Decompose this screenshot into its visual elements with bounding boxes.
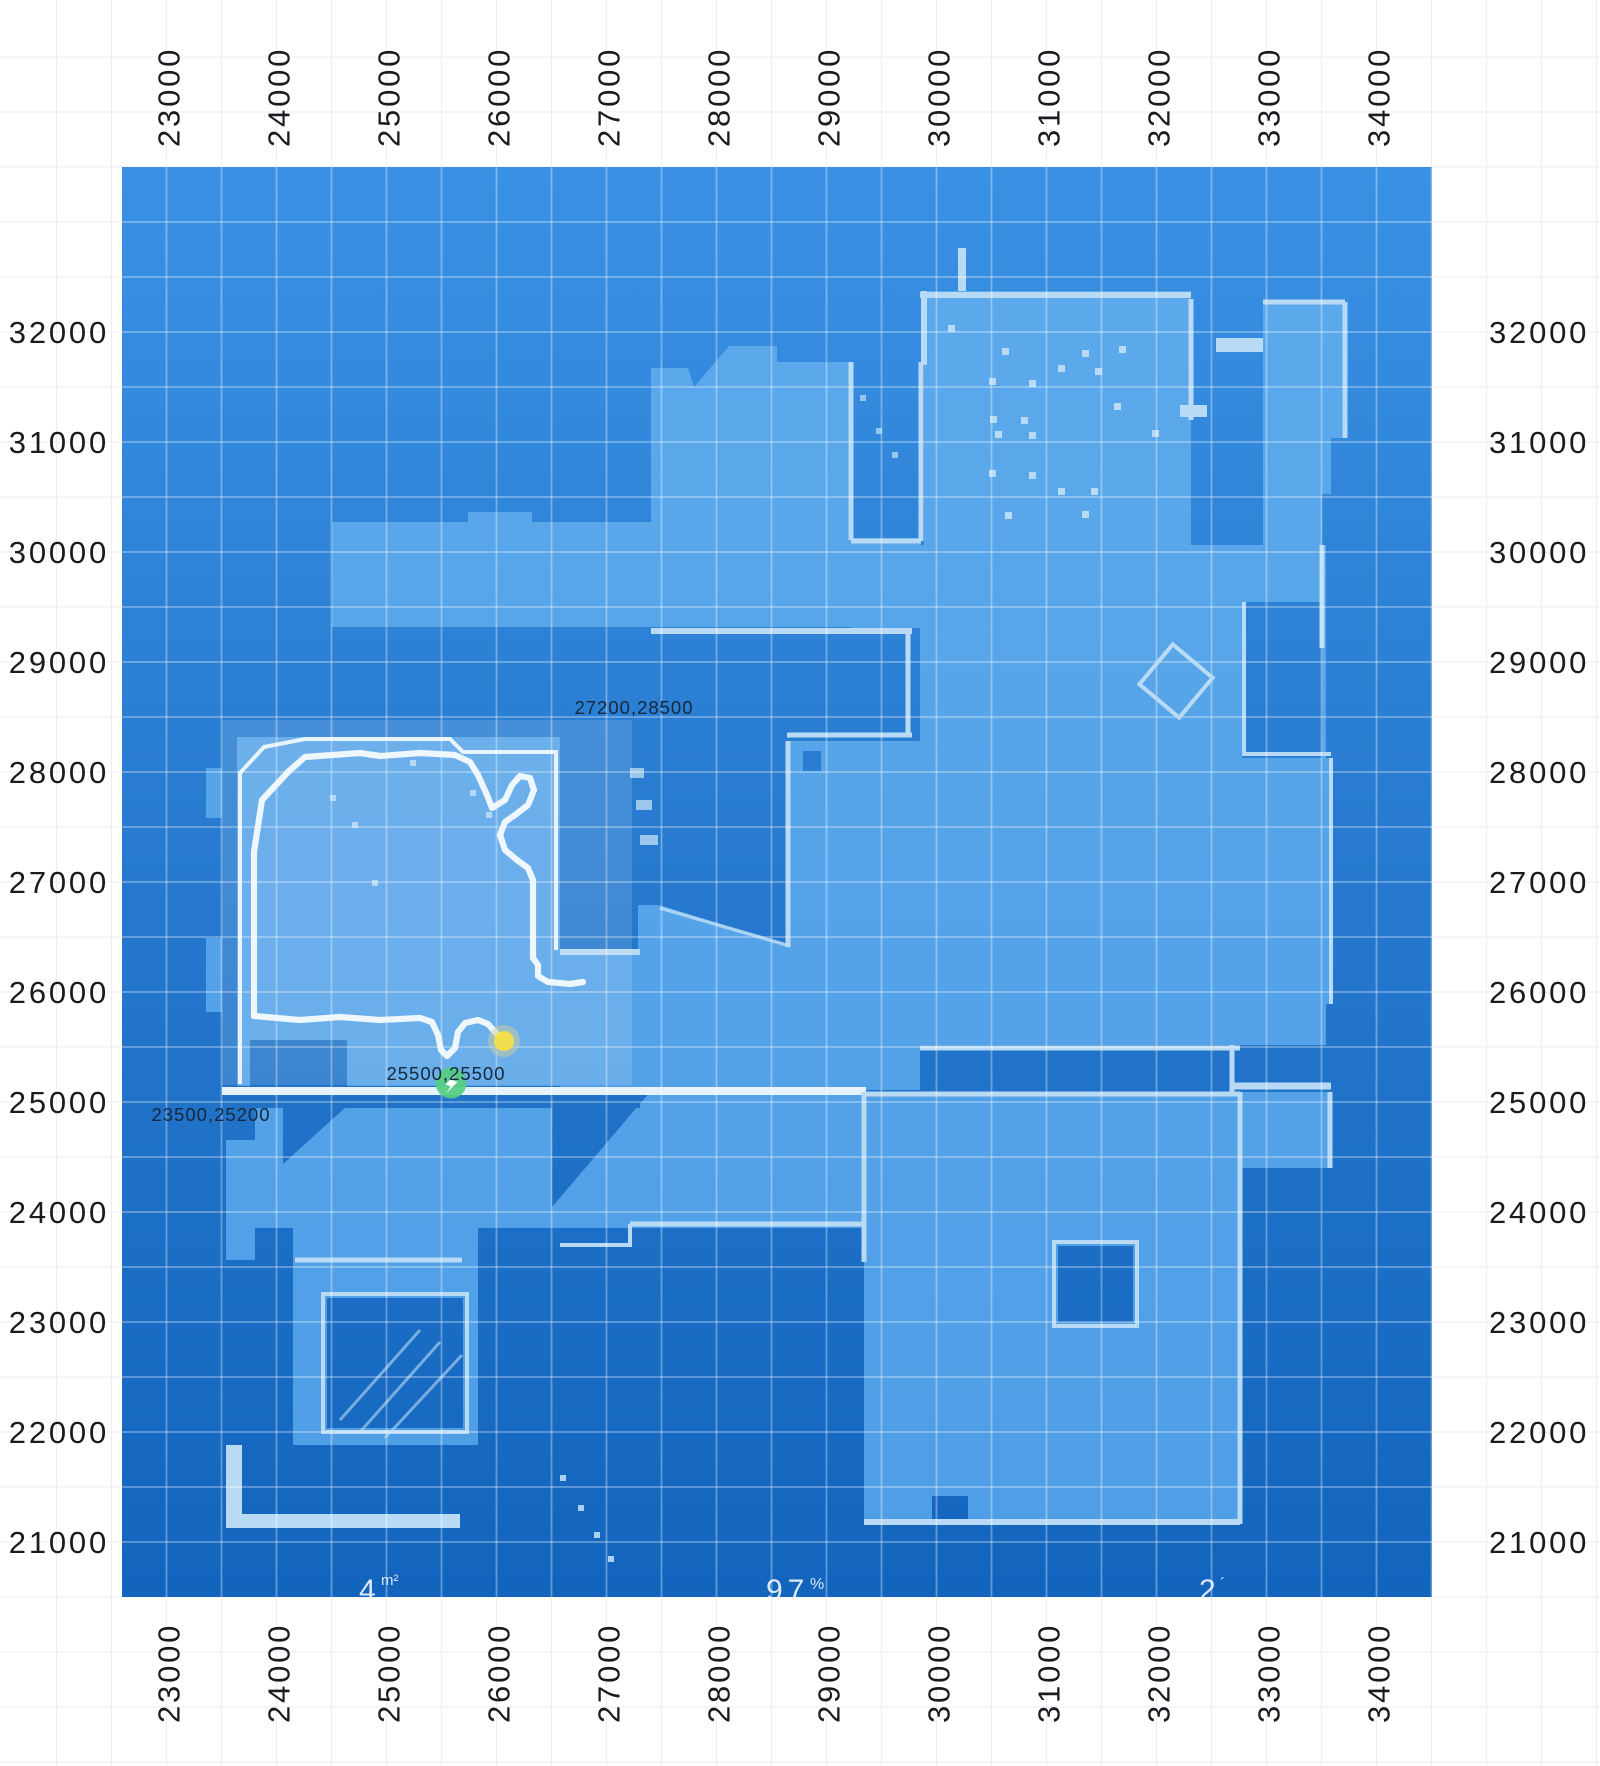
svg-text:22000: 22000 [1489,1415,1589,1450]
svg-text:29000: 29000 [812,47,847,147]
svg-text:34000: 34000 [1362,1623,1397,1723]
svg-text:25000: 25000 [1489,1085,1589,1120]
svg-text:31000: 31000 [1032,1623,1067,1723]
svg-text:23500,25200: 23500,25200 [151,1104,270,1125]
svg-text:31000: 31000 [1032,47,1067,147]
svg-text:28000: 28000 [702,47,737,147]
svg-text:26000: 26000 [482,47,517,147]
svg-text:26000: 26000 [1489,975,1589,1010]
svg-text:27000: 27000 [9,865,109,900]
svg-text:24000: 24000 [9,1195,109,1230]
svg-text:29000: 29000 [9,645,109,680]
svg-text:32000: 32000 [9,315,109,350]
svg-text:32000: 32000 [1142,1623,1177,1723]
svg-text:23000: 23000 [9,1305,109,1340]
svg-text:29000: 29000 [1489,645,1589,680]
svg-text:30000: 30000 [1489,535,1589,570]
svg-text:27000: 27000 [592,1623,627,1723]
svg-text:23000: 23000 [152,47,187,147]
svg-text:26000: 26000 [9,975,109,1010]
svg-text:33000: 33000 [1252,1623,1287,1723]
svg-text:25000: 25000 [372,1623,407,1723]
svg-text:31000: 31000 [9,425,109,460]
svg-text:´: ´ [1220,1576,1225,1593]
svg-text:25000: 25000 [372,47,407,147]
svg-text:25000: 25000 [9,1085,109,1120]
svg-text:22000: 22000 [9,1415,109,1450]
svg-text:21000: 21000 [9,1525,109,1560]
svg-text:32000: 32000 [1489,315,1589,350]
svg-text:28000: 28000 [1489,755,1589,790]
svg-text:21000: 21000 [1489,1525,1589,1560]
svg-text:30000: 30000 [922,47,957,147]
svg-text:27000: 27000 [592,47,627,147]
svg-text:27200,28500: 27200,28500 [574,697,693,718]
svg-text:33000: 33000 [1252,47,1287,147]
svg-text:24000: 24000 [1489,1195,1589,1230]
svg-text:24000: 24000 [262,47,297,147]
svg-text:25500,25500: 25500,25500 [386,1063,505,1084]
svg-text:23000: 23000 [152,1623,187,1723]
svg-text:32000: 32000 [1142,47,1177,147]
svg-text:34000: 34000 [1362,47,1397,147]
svg-text:24000: 24000 [262,1623,297,1723]
svg-text:28000: 28000 [9,755,109,790]
svg-text:29000: 29000 [812,1623,847,1723]
svg-text:27000: 27000 [1489,865,1589,900]
svg-text:30000: 30000 [922,1623,957,1723]
svg-text:23000: 23000 [1489,1305,1589,1340]
svg-text:m²: m² [381,1572,399,1589]
svg-text:31000: 31000 [1489,425,1589,460]
svg-text:28000: 28000 [702,1623,737,1723]
svg-text:%: % [810,1576,824,1593]
svg-text:26000: 26000 [482,1623,517,1723]
svg-text:30000: 30000 [9,535,109,570]
